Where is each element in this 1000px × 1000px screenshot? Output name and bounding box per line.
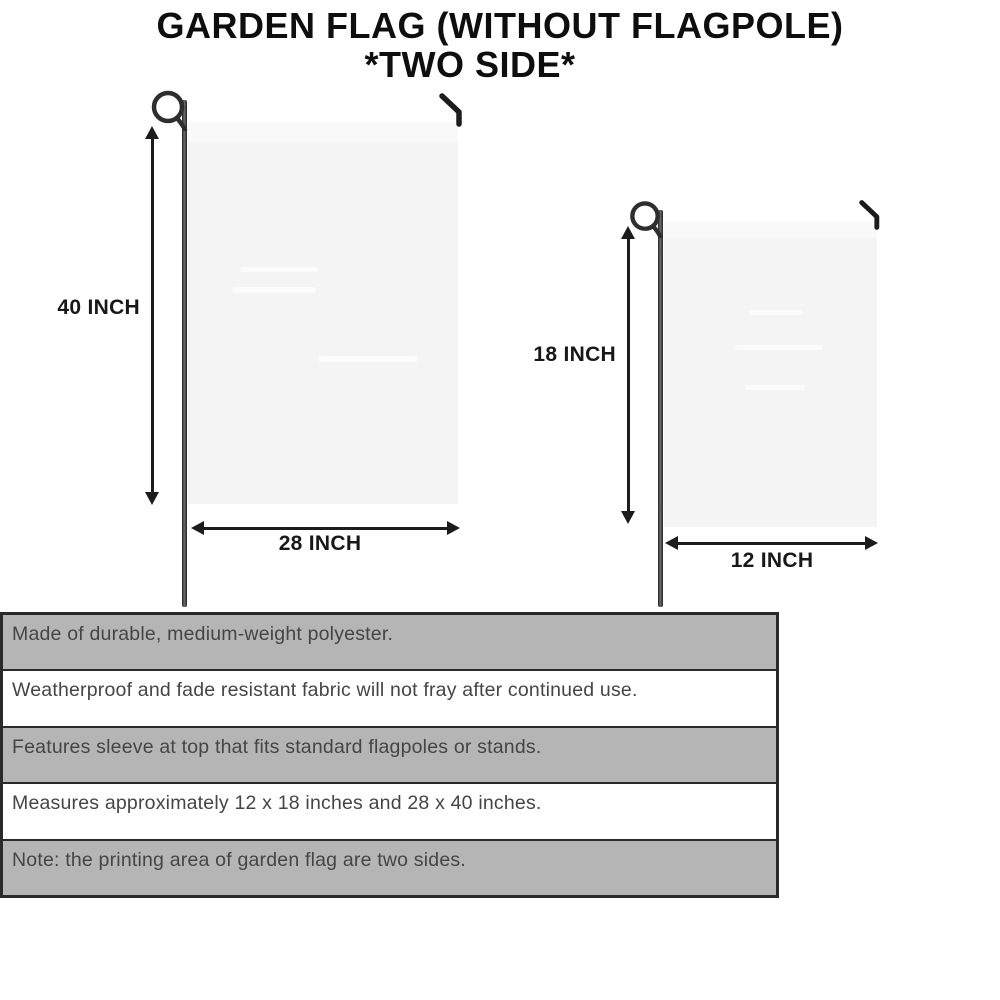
page-title: GARDEN FLAG (WITHOUT FLAGPOLE) [0,6,1000,46]
large-width-label: 28 INCH [250,532,390,556]
small-flagpole [658,210,663,607]
feature-row-material: Made of durable, medium-weight polyester… [3,615,776,669]
large-flag-hook-icon [438,92,468,128]
small-flag-hook-icon [858,199,885,231]
arrow-down-icon [145,492,159,505]
fabric-sheen [735,345,823,350]
fabric-sheen [745,385,805,390]
arrow-line [627,236,630,514]
large-height-arrow [145,126,159,505]
small-width-arrow [665,536,878,550]
title-block: GARDEN FLAG (WITHOUT FLAGPOLE) *TWO SIDE… [0,6,1000,84]
feature-row-weatherproof: Weatherproof and fade resistant fabric w… [3,669,776,725]
fabric-sheen [748,310,803,315]
large-flagpole [182,100,187,607]
arrow-line [675,542,868,545]
feature-row-measurements: Measures approximately 12 x 18 inches an… [3,782,776,838]
large-height-label: 40 INCH [40,296,140,320]
fabric-sheen [240,267,318,272]
arrow-down-icon [621,511,635,524]
large-flagpole-loop-icon [147,85,189,131]
page-subtitle: *TWO SIDE* [0,46,970,84]
large-flag-fabric [188,122,458,504]
feature-row-sleeve: Features sleeve at top that fits standar… [3,726,776,782]
feature-row-note: Note: the printing area of garden flag a… [3,839,776,895]
garden-flag-size-infographic: GARDEN FLAG (WITHOUT FLAGPOLE) *TWO SIDE… [0,0,1000,1000]
arrow-right-icon [865,536,878,550]
fabric-sheen [318,356,418,362]
small-height-label: 18 INCH [516,343,616,367]
arrow-line [151,136,154,495]
small-flag-fabric [664,222,877,527]
fabric-sheen [232,287,316,293]
small-flag-sleeve [664,222,877,238]
arrow-right-icon [447,521,460,535]
large-flag-sleeve [188,122,458,142]
small-width-label: 12 INCH [702,549,842,573]
small-height-arrow [621,226,635,524]
features-table: Made of durable, medium-weight polyester… [0,612,779,898]
arrow-line [201,527,450,530]
